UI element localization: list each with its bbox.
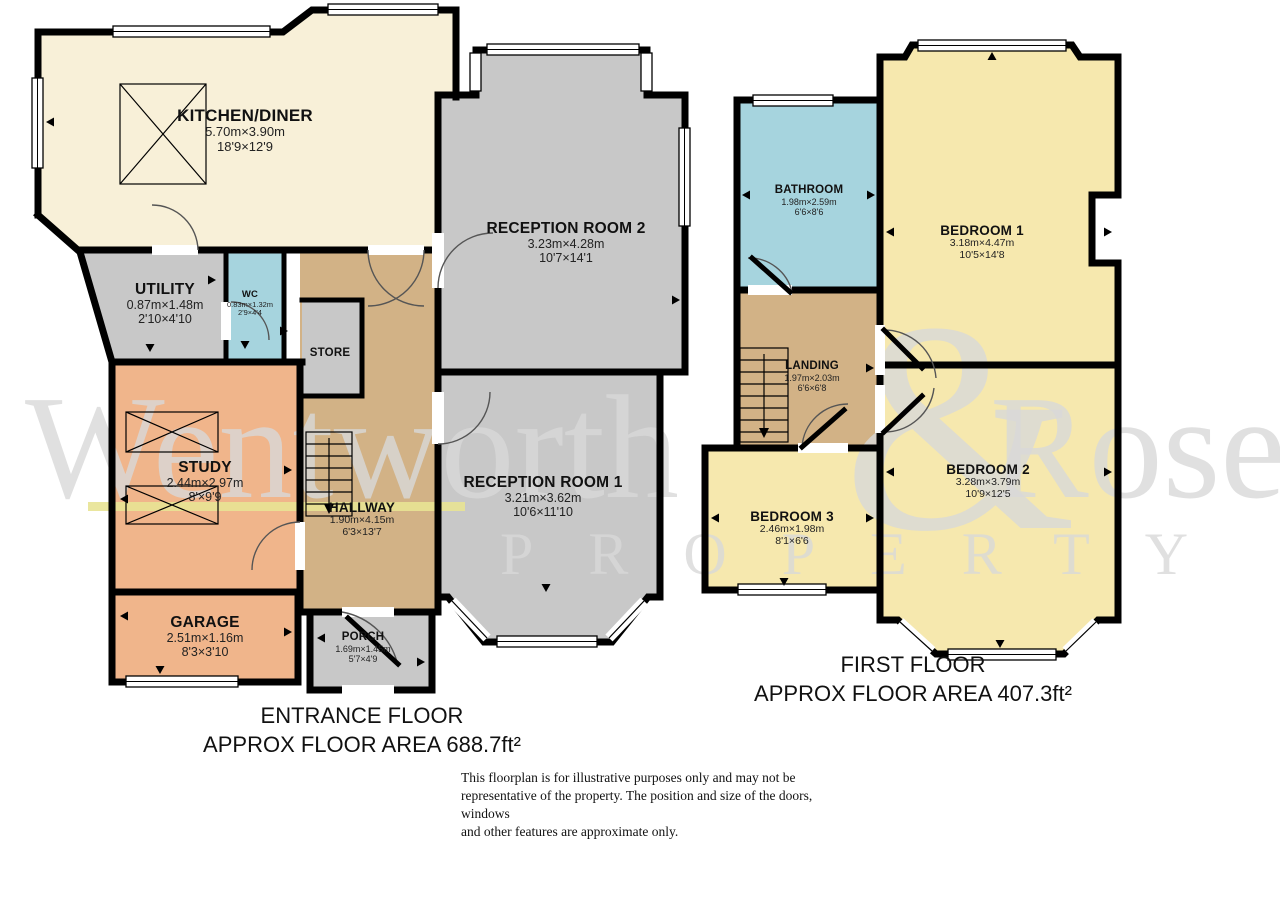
floorplan-canvas: Wentworth & Rose PROPERTY (0, 0, 1280, 906)
room-name: RECEPTION ROOM 1 (463, 474, 622, 491)
room-name: BEDROOM 1 (940, 223, 1024, 238)
disclaimer-line3: and other features are approximate only. (461, 823, 841, 841)
room-dim-imperial: 6'6×6'8 (784, 383, 839, 393)
room-dim-metric: 3.21m×3.62m (463, 491, 622, 505)
first-floor-caption-line1: FIRST FLOOR (754, 650, 1072, 679)
room-label-kitchen: KITCHEN/DINER 5.70m×3.90m 18'9×12'9 (177, 106, 313, 154)
room-label-bedroom2: BEDROOM 2 3.28m×3.79m 10'9×12'5 (946, 462, 1030, 501)
room-dim-metric: 1.98m×2.59m (775, 197, 843, 207)
room-dim-imperial: 8'3×3'10 (167, 645, 244, 659)
room-dim-imperial: 10'5×14'8 (940, 250, 1024, 262)
room-label-bathroom: BATHROOM 1.98m×2.59m 6'6×8'6 (775, 184, 843, 217)
room-label-porch: PORCH 1.69m×1.45m 5'7×4'9 (335, 631, 390, 664)
room-dim-imperial: 10'6×11'10 (463, 505, 622, 519)
disclaimer-line1: This floorplan is for illustrative purpo… (461, 769, 841, 787)
room-dim-metric: 3.23m×4.28m (486, 237, 645, 251)
room-label-store: STORE (310, 347, 350, 360)
entrance-floor-caption-line1: ENTRANCE FLOOR (203, 701, 521, 730)
room-dim-imperial: 5'7×4'9 (335, 654, 390, 664)
room-name: STUDY (167, 459, 244, 476)
room-dim-imperial: 8'×9'9 (167, 490, 244, 504)
room-label-hallway: HALLWAY 1.90m×4.15m 6'3×13'7 (329, 500, 395, 539)
room-label-garage: GARAGE 2.51m×1.16m 8'3×3'10 (167, 614, 244, 659)
room-name: BEDROOM 3 (750, 509, 834, 524)
room-name: KITCHEN/DINER (177, 106, 313, 125)
room-label-reception2: RECEPTION ROOM 2 3.23m×4.28m 10'7×14'1 (486, 220, 645, 265)
room-dim-metric: 2.51m×1.16m (167, 631, 244, 645)
room-label-bedroom1: BEDROOM 1 3.18m×4.47m 10'5×14'8 (940, 223, 1024, 262)
room-dim-imperial: 18'9×12'9 (177, 140, 313, 155)
watermark-name-right: Rose (990, 366, 1280, 530)
room-name: STORE (310, 347, 350, 360)
entrance-floor-caption-line2: APPROX FLOOR AREA 688.7ft² (203, 730, 521, 759)
watermark-subtitle: PROPERTY (500, 521, 1243, 587)
first-floor-caption: FIRST FLOOR APPROX FLOOR AREA 407.3ft² (754, 650, 1072, 708)
room-name: BEDROOM 2 (946, 462, 1030, 477)
room-name: HALLWAY (329, 500, 395, 515)
room-dim-metric: 5.70m×3.90m (177, 125, 313, 140)
room-dim-imperial: 6'6×8'6 (775, 207, 843, 217)
room-dim-metric: 2.44m×2.97m (167, 476, 244, 490)
first-floor-caption-line2: APPROX FLOOR AREA 407.3ft² (754, 679, 1072, 708)
room-dim-imperial: 6'3×13'7 (329, 527, 395, 539)
room-dim-metric: 1.97m×2.03m (784, 373, 839, 383)
room-dim-imperial: 10'7×14'1 (486, 251, 645, 265)
room-label-bedroom3: BEDROOM 3 2.46m×1.98m 8'1×6'6 (750, 509, 834, 548)
room-label-reception1: RECEPTION ROOM 1 3.21m×3.62m 10'6×11'10 (463, 474, 622, 519)
room-dim-imperial: 2'10×4'10 (127, 312, 204, 326)
room-name: BATHROOM (775, 184, 843, 197)
room-name: GARAGE (167, 614, 244, 631)
disclaimer-line2: representative of the property. The posi… (461, 787, 841, 823)
room-dim-metric: 0.87m×1.48m (127, 298, 204, 312)
disclaimer-text: This floorplan is for illustrative purpo… (461, 769, 841, 841)
room-dim-metric: 1.69m×1.45m (335, 644, 390, 654)
room-label-utility: UTILITY 0.87m×1.48m 2'10×4'10 (127, 281, 204, 326)
room-dim-imperial: 10'9×12'5 (946, 489, 1030, 501)
room-name: RECEPTION ROOM 2 (486, 220, 645, 237)
room-dim-imperial: 8'1×6'6 (750, 536, 834, 548)
room-name: LANDING (784, 360, 839, 373)
room-label-study: STUDY 2.44m×2.97m 8'×9'9 (167, 459, 244, 504)
room-label-landing: LANDING 1.97m×2.03m 6'6×6'8 (784, 360, 839, 393)
entrance-floor-caption: ENTRANCE FLOOR APPROX FLOOR AREA 688.7ft… (203, 701, 521, 759)
room-name: UTILITY (127, 281, 204, 298)
room-label-wc: WC 0.83m×1.32m 2'9×4'4 (227, 290, 273, 317)
room-name: PORCH (335, 631, 390, 644)
room-dim-imperial: 2'9×4'4 (227, 309, 273, 317)
